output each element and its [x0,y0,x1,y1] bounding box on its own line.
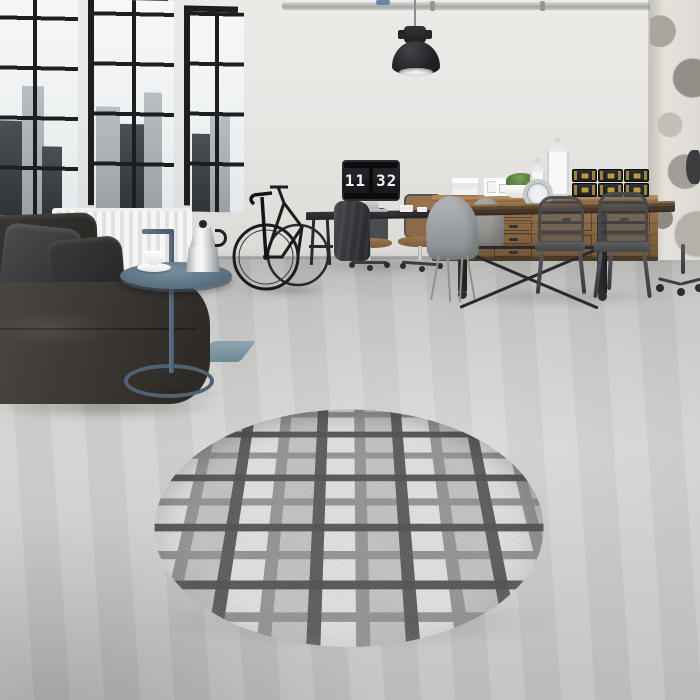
caster-wheel [656,284,664,292]
trunk-box [624,169,649,182]
trunk-box [572,183,597,197]
city-building [96,106,120,212]
desk-papers [400,205,413,212]
city-building [22,86,44,216]
desk-stretcher [309,245,333,248]
moka-pot-boiler [185,247,221,272]
city-building [120,124,146,213]
window-3 [184,5,238,206]
clock-hours: 11 [342,168,369,194]
monitor-flip-clock: 11 32 [342,160,400,201]
clock-minutes: 32 [373,168,400,194]
pipe-collar [430,1,435,11]
ceiling-conduit-pipe [282,2,700,10]
window-1-glass [0,0,78,217]
magazine-stack [452,178,478,195]
caster-wheel [349,262,355,268]
coffee-cup [144,251,164,265]
caster-wheel [695,284,700,292]
window-2-glass [94,0,174,213]
pipe-collar [540,1,545,11]
bicycle-shadow [236,284,332,296]
table-caster [598,292,607,301]
caster-wheel [367,265,373,271]
bicycle [232,163,332,295]
caster-wheel [677,288,685,296]
draped-jacket [334,201,370,261]
window-1 [0,0,72,211]
trunk-box [572,169,597,182]
office-chair-2-column [418,246,422,260]
trunk-box [598,169,623,182]
city-building [192,134,210,212]
metal-armchair-2-back [538,196,584,244]
caster-wheel [400,263,406,269]
office-chair-1-base [351,261,387,264]
moka-pot-lid-knob [199,220,207,228]
city-building [0,120,22,216]
desk-papers [417,207,427,212]
caster-wheel [419,266,425,272]
window-2 [88,0,168,207]
side-table-stem-top [142,229,174,234]
city-building [210,114,230,212]
metal-armchair-1-seat [594,242,650,252]
pendant-lamp-rim [399,68,433,76]
room-scene: 11 32 [0,0,700,700]
caster-wheel [384,262,390,268]
side-table-stem [169,231,174,373]
city-building [144,92,162,212]
city-building [42,146,62,216]
rolling-base-post [681,244,685,274]
pipe-blue-fitting [376,0,390,5]
wall-sconce [686,150,700,184]
metal-armchair-1-back [598,192,648,244]
lamp-cord [414,0,416,28]
